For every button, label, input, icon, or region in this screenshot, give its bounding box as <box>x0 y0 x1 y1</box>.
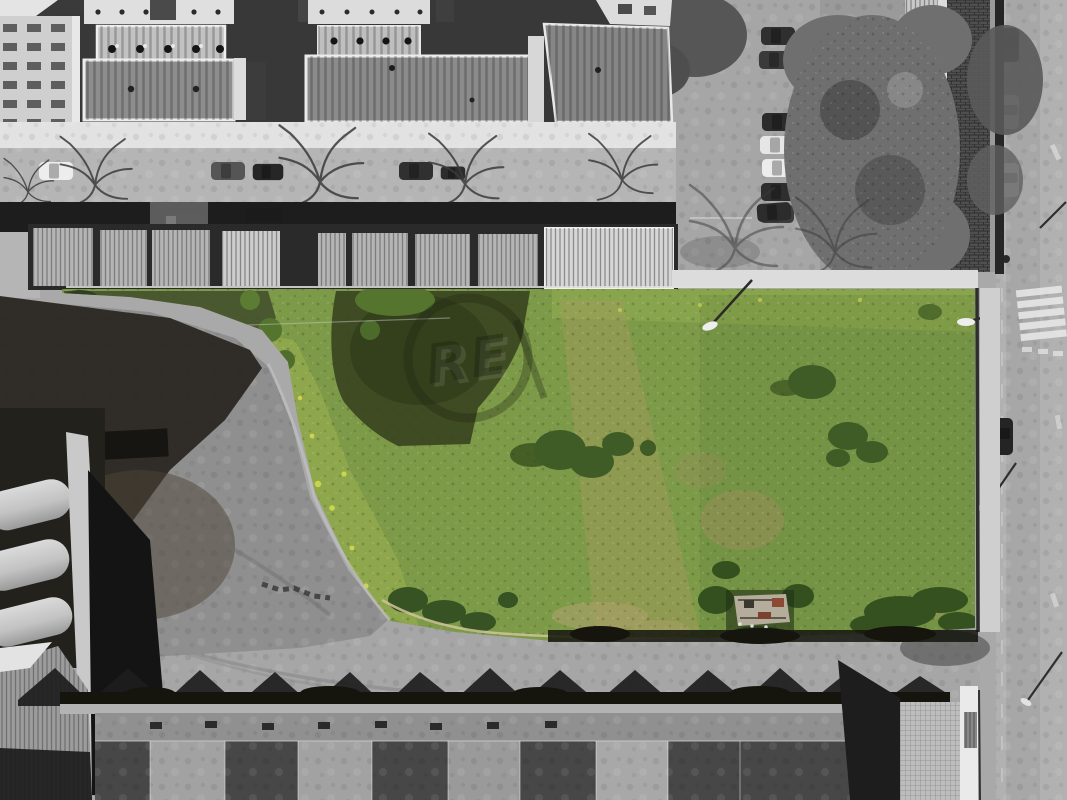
silo-tanks <box>0 475 76 651</box>
watermark-text: RE <box>422 322 514 396</box>
building-gap-wall <box>528 36 544 122</box>
plot-boundary-right <box>977 288 1000 632</box>
sidewalk-above-plot <box>672 270 978 288</box>
garage-row <box>28 224 678 290</box>
apartment-block-3 <box>544 0 672 122</box>
plot-bottom-hedge <box>548 626 978 644</box>
aerial-photo: RE RE <box>0 0 1067 800</box>
ruin-structure <box>726 590 794 632</box>
